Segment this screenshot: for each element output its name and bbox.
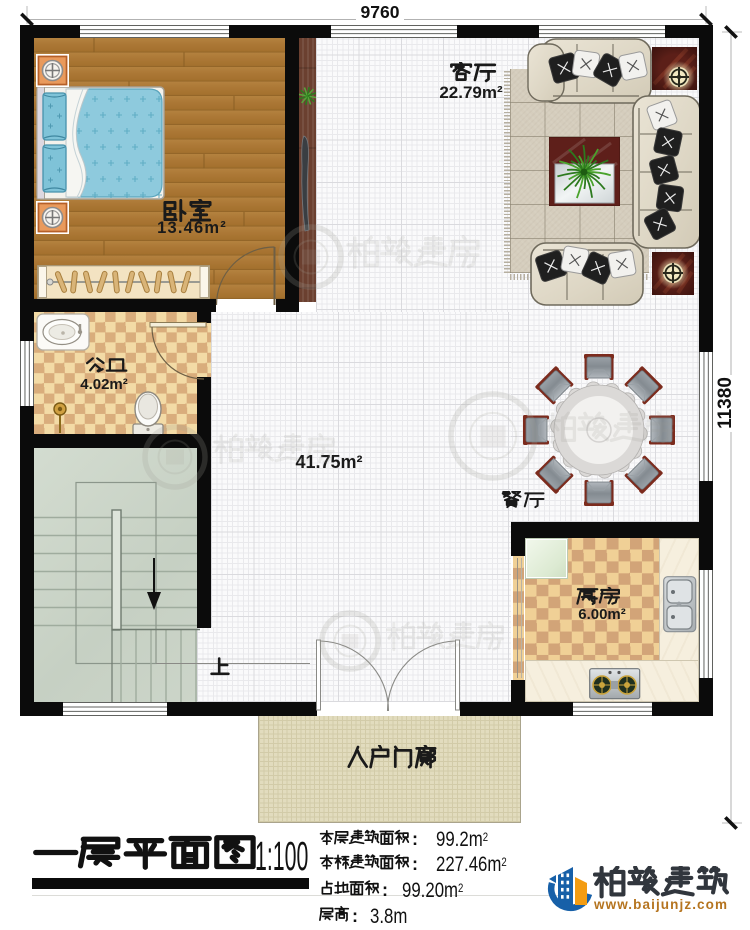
svg-text:9760: 9760: [361, 2, 400, 22]
svg-text:11380: 11380: [715, 377, 736, 429]
